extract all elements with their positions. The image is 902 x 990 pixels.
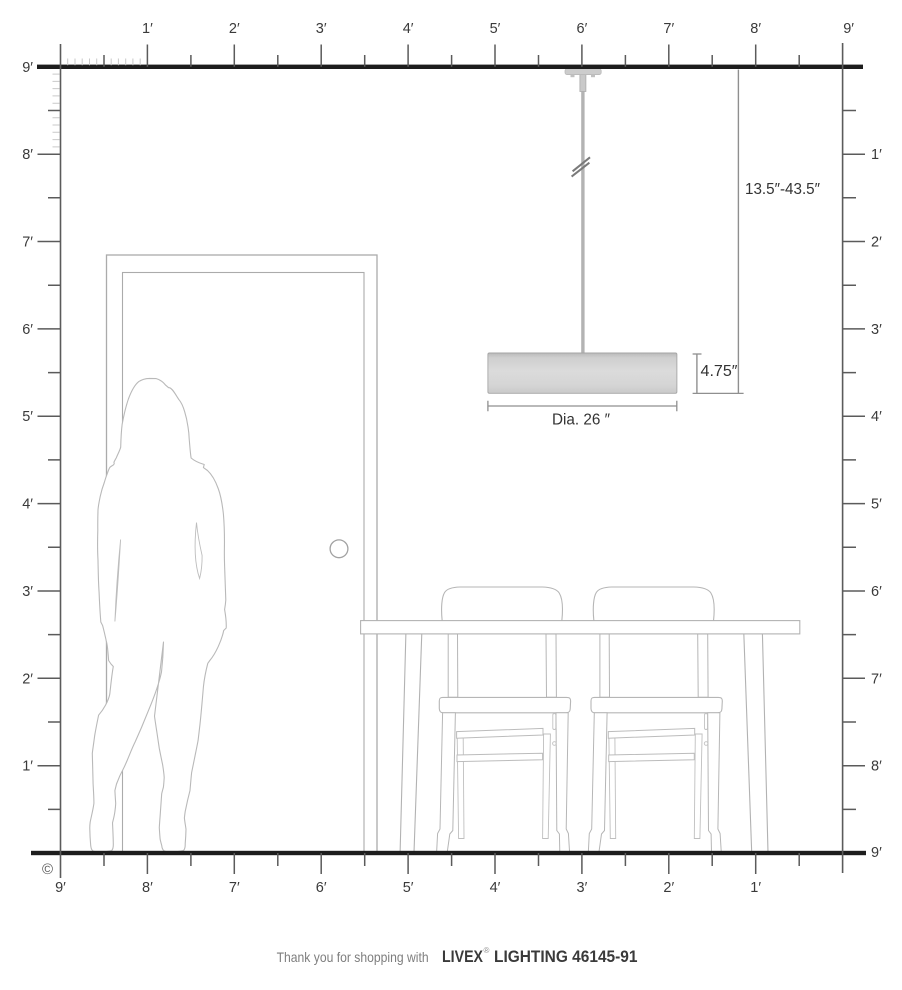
svg-text:9′: 9′ bbox=[843, 21, 854, 37]
svg-text:6′: 6′ bbox=[316, 880, 327, 896]
svg-text:1′: 1′ bbox=[871, 147, 882, 163]
svg-text:4′: 4′ bbox=[22, 497, 33, 513]
svg-text:5′: 5′ bbox=[403, 880, 414, 896]
svg-text:1′: 1′ bbox=[750, 880, 761, 896]
svg-text:5′: 5′ bbox=[490, 21, 501, 37]
svg-text:2′: 2′ bbox=[229, 21, 240, 37]
svg-text:3′: 3′ bbox=[577, 880, 588, 896]
svg-text:LIVEX: LIVEX bbox=[442, 947, 484, 966]
svg-text:5′: 5′ bbox=[871, 497, 882, 513]
svg-text:1′: 1′ bbox=[22, 759, 33, 775]
svg-text:3′: 3′ bbox=[316, 21, 327, 37]
svg-text:8′: 8′ bbox=[142, 880, 153, 896]
svg-text:3′: 3′ bbox=[22, 584, 33, 600]
svg-text:7′: 7′ bbox=[663, 21, 674, 37]
svg-text:6′: 6′ bbox=[577, 21, 588, 37]
svg-text:LIGHTING 46145-91: LIGHTING 46145-91 bbox=[494, 947, 638, 966]
svg-text:8′: 8′ bbox=[22, 147, 33, 163]
svg-text:4.75″: 4.75″ bbox=[701, 363, 738, 380]
svg-text:2′: 2′ bbox=[871, 235, 882, 251]
svg-text:Thank you for shopping with: Thank you for shopping with bbox=[277, 949, 429, 965]
svg-text:Dia. 26 ″: Dia. 26 ″ bbox=[552, 412, 610, 429]
svg-text:9′: 9′ bbox=[871, 845, 882, 861]
svg-text:13.5″-43.5″: 13.5″-43.5″ bbox=[745, 181, 820, 198]
svg-text:9′: 9′ bbox=[55, 880, 66, 896]
svg-text:®: ® bbox=[484, 946, 490, 955]
svg-text:9′: 9′ bbox=[22, 60, 33, 76]
svg-text:7′: 7′ bbox=[22, 235, 33, 251]
svg-text:3′: 3′ bbox=[871, 322, 882, 338]
svg-text:4′: 4′ bbox=[490, 880, 501, 896]
svg-text:7′: 7′ bbox=[871, 671, 882, 687]
svg-text:©: © bbox=[42, 861, 53, 878]
svg-text:2′: 2′ bbox=[22, 671, 33, 687]
svg-text:4′: 4′ bbox=[871, 409, 882, 425]
svg-text:6′: 6′ bbox=[22, 322, 33, 338]
svg-text:1′: 1′ bbox=[142, 21, 153, 37]
svg-text:2′: 2′ bbox=[663, 880, 674, 896]
svg-text:6′: 6′ bbox=[871, 584, 882, 600]
svg-text:7′: 7′ bbox=[229, 880, 240, 896]
svg-text:4′: 4′ bbox=[403, 21, 414, 37]
svg-text:5′: 5′ bbox=[22, 409, 33, 425]
svg-text:8′: 8′ bbox=[871, 759, 882, 775]
svg-text:8′: 8′ bbox=[750, 21, 761, 37]
